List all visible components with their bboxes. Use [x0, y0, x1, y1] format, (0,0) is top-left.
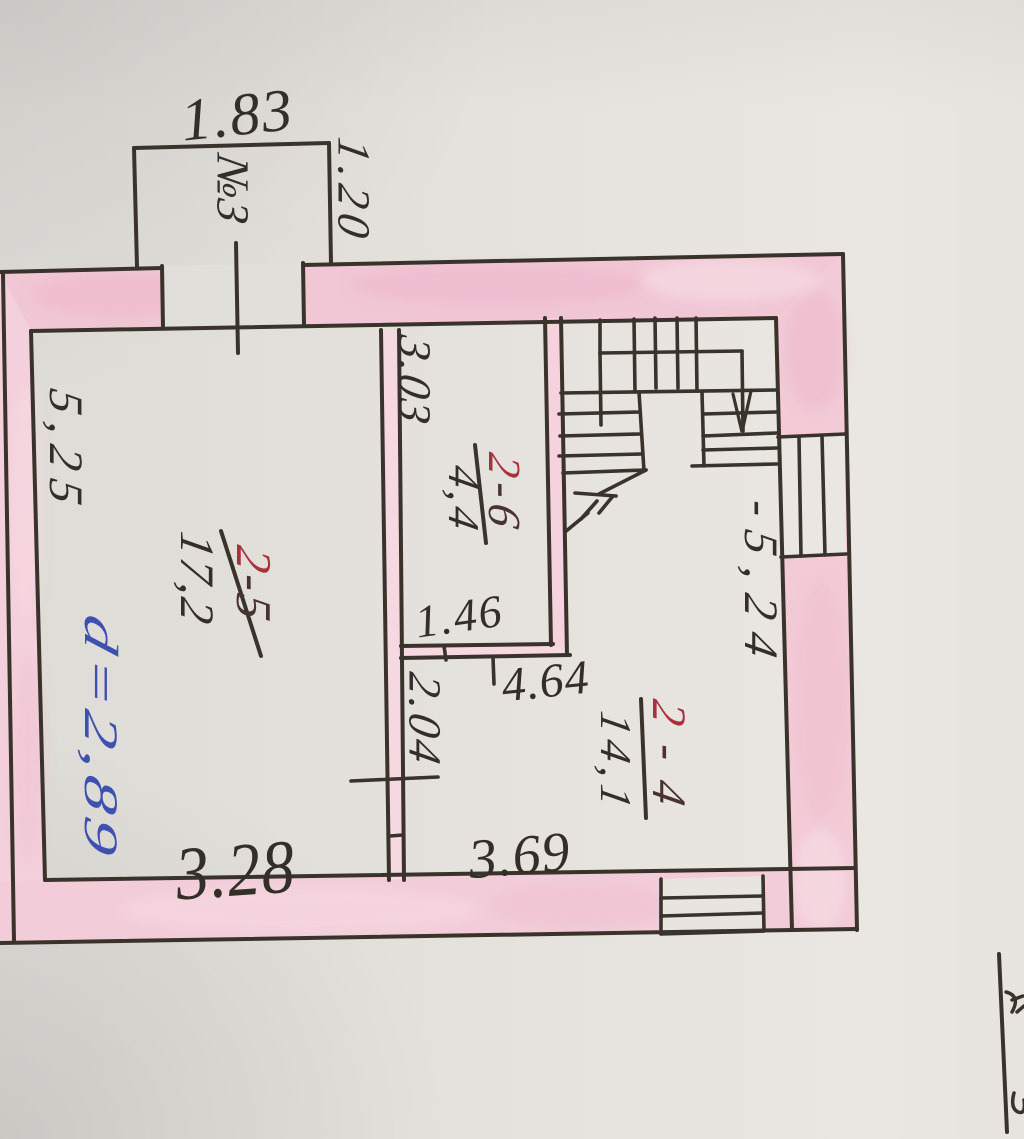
svg-text:2.04: 2.04 — [399, 669, 450, 770]
svg-text:17,2: 17,2 — [170, 528, 223, 629]
svg-text:№3: №3 — [207, 149, 258, 228]
svg-text:3.03: 3.03 — [389, 331, 440, 429]
svg-text:5,25: 5,25 — [39, 385, 92, 518]
svg-text:d=2,89: d=2,89 — [74, 610, 127, 867]
svg-text:1.83: 1.83 — [178, 76, 297, 153]
svg-text:2-5: 2-5 — [227, 542, 283, 627]
svg-text:3.28: 3.28 — [172, 825, 298, 916]
svg-text:-5,24: -5,24 — [734, 496, 787, 675]
svg-text:1.20: 1.20 — [328, 134, 379, 247]
svg-text:4,4: 4,4 — [439, 462, 489, 538]
svg-text:2-4: 2-4 — [642, 696, 695, 829]
svg-text:14,1: 14,1 — [591, 708, 641, 818]
svg-text:4.64: 4.64 — [499, 651, 592, 713]
svg-text:3.69: 3.69 — [465, 821, 573, 892]
